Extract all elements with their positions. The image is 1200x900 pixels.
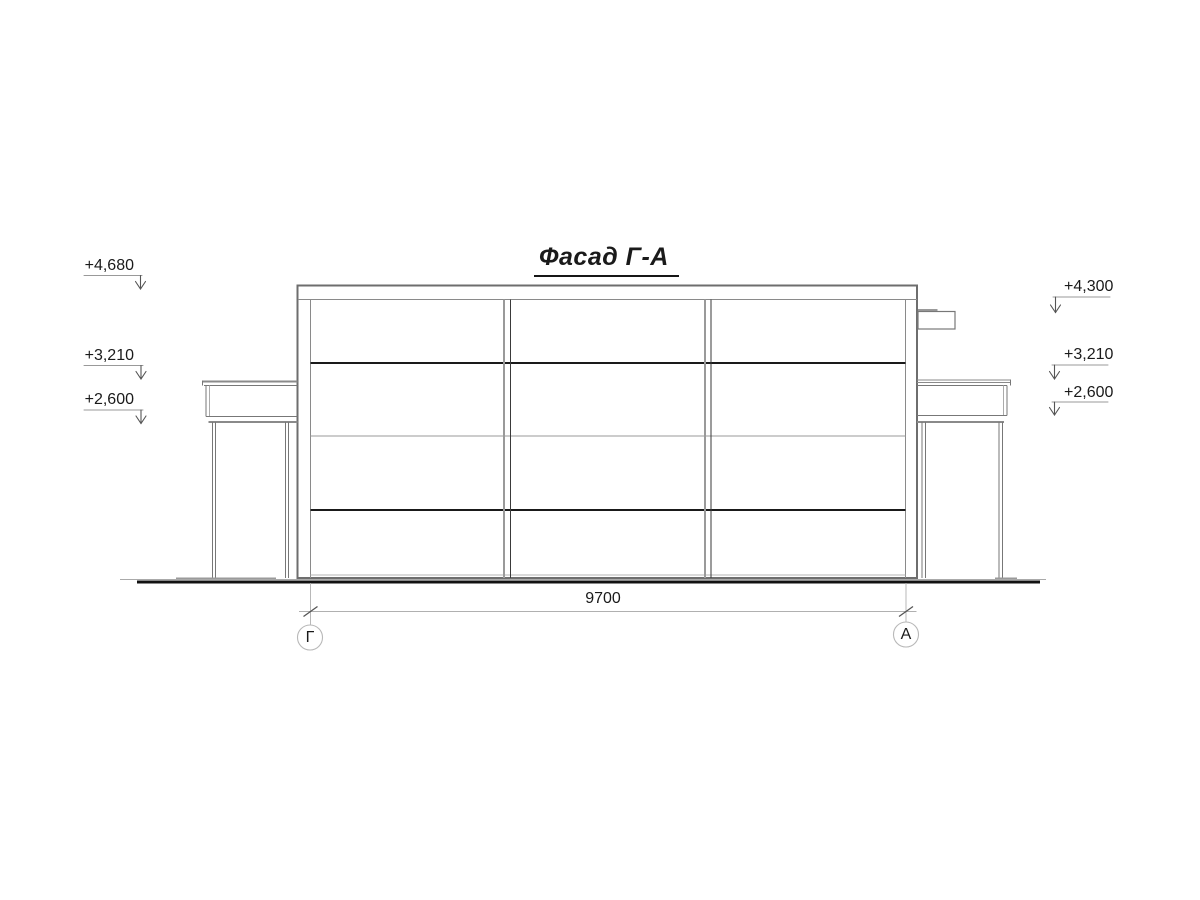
elevation-mark-right-2600: +2,600	[1064, 384, 1140, 402]
elevation-leader-left-1	[84, 276, 146, 290]
elevation-leader-right-3	[1050, 402, 1109, 415]
elevation-mark-right-4300: +4,300	[1064, 278, 1140, 296]
elevation-leader-left-3	[84, 410, 146, 424]
drawing-title: Фасад Г-А	[534, 243, 679, 277]
axis-bubbles	[298, 622, 919, 650]
roof-protrusion	[918, 310, 955, 329]
ground-line	[120, 580, 1046, 583]
right-canopy	[917, 380, 1017, 579]
elevation-leader-right-1	[1051, 297, 1111, 313]
elevation-mark-left-3210: +3,210	[58, 347, 134, 365]
axis-label-left: Г	[297, 629, 323, 647]
elevation-mark-left-4680: +4,680	[58, 257, 134, 275]
elevation-leader-right-2	[1050, 365, 1109, 379]
elevation-mark-left-2600: +2,600	[58, 391, 134, 409]
facade-outline	[298, 286, 918, 579]
elevation-mark-right-3210: +3,210	[1064, 346, 1140, 364]
roof-protrusion-box	[918, 312, 955, 330]
facade-elevation-drawing	[0, 0, 1200, 900]
left-canopy	[176, 381, 298, 579]
elevation-leader-left-2	[84, 366, 146, 380]
drawing-canvas: Фасад Г-А +4,680 +3,210 +2,600 +4,300 +3…	[0, 0, 1200, 900]
dimension-value: 9700	[563, 590, 643, 608]
axis-label-right: А	[893, 626, 919, 644]
main-facade	[298, 286, 918, 579]
